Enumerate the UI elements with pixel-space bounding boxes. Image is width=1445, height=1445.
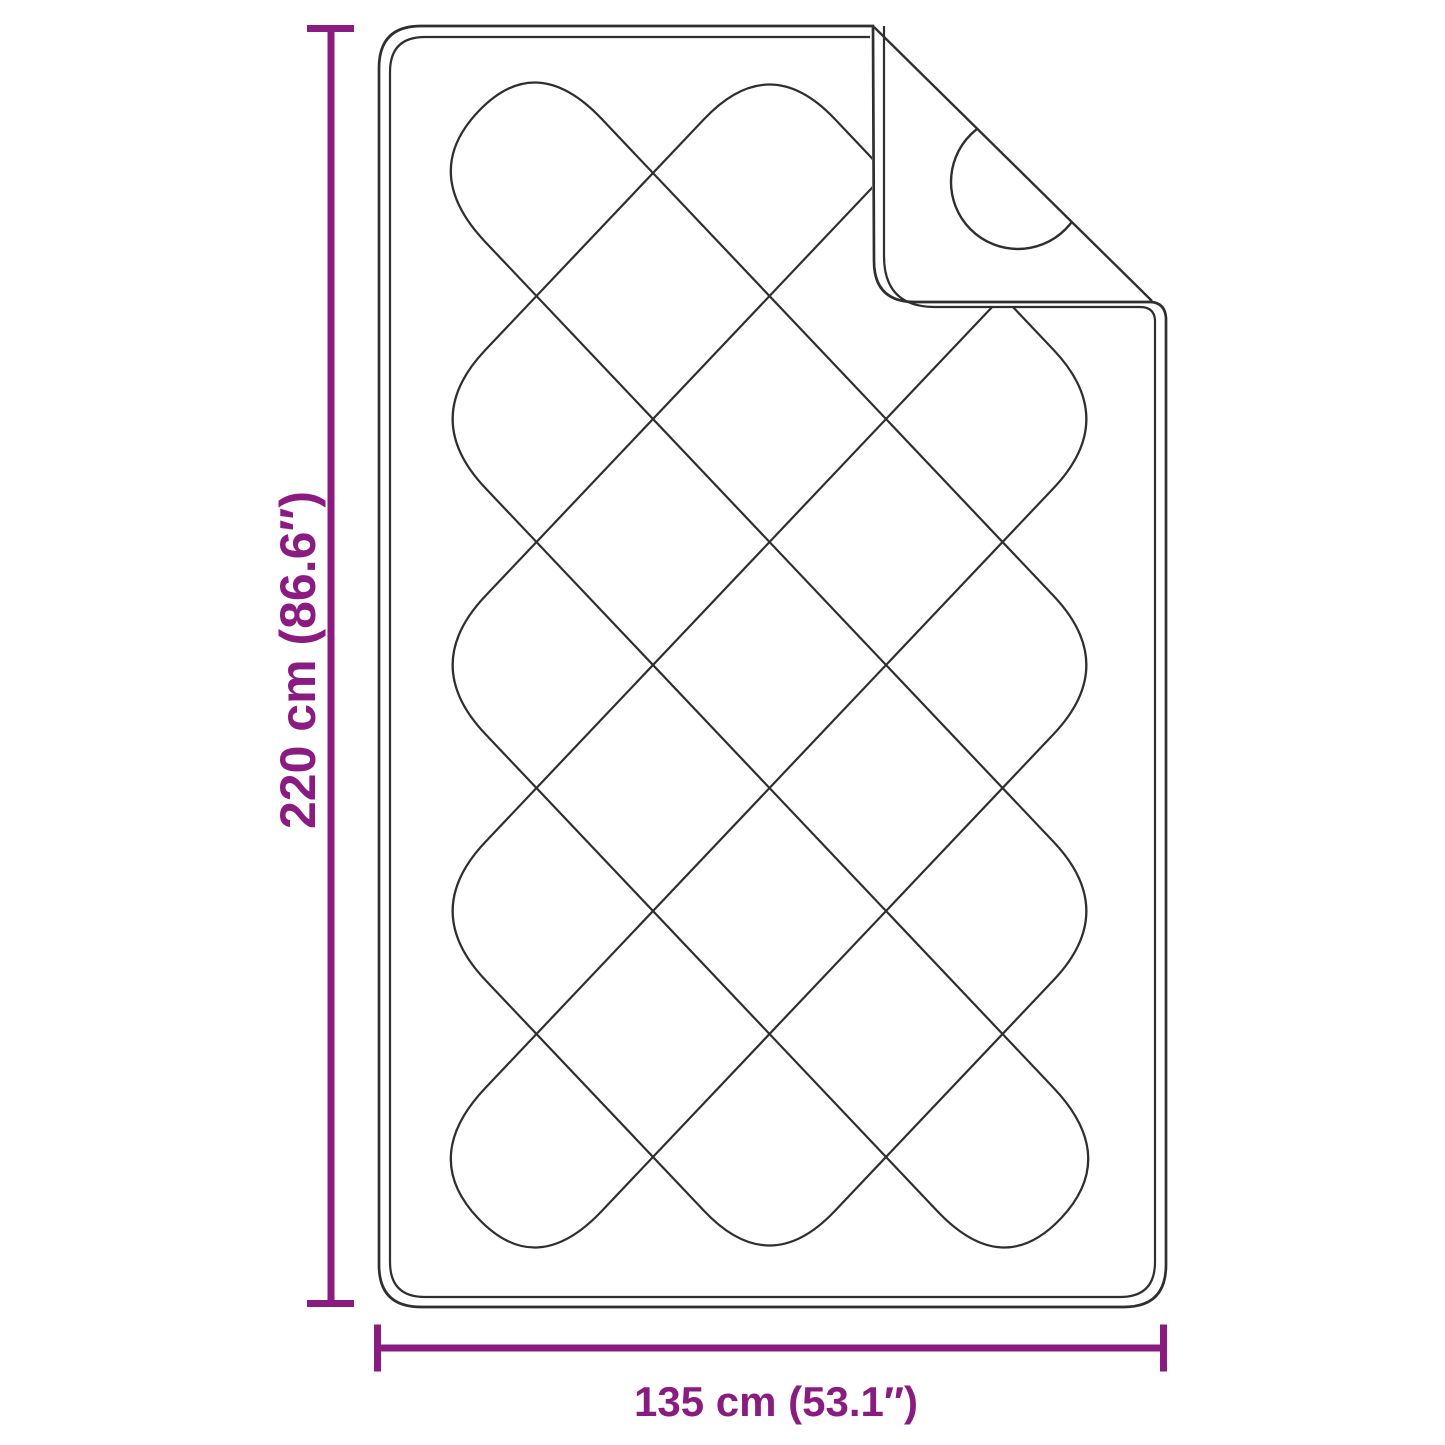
quilt-stitching-pattern	[451, 83, 1088, 1248]
quilting-pattern-group	[451, 83, 1088, 1248]
height-dimension-label: 220 cm (86.6″)	[270, 491, 326, 829]
fold-crease-line	[874, 27, 1152, 301]
height-dimension: 220 cm (86.6″)	[270, 29, 354, 1304]
blanket-outer-edge	[379, 26, 1166, 1307]
width-dimension-label: 135 cm (53.1″)	[634, 1378, 918, 1425]
product-dimension-diagram: 220 cm (86.6″) 135 cm (53.1″)	[0, 0, 1445, 1445]
width-dimension: 135 cm (53.1″)	[378, 1325, 1164, 1426]
fold-label-circle	[951, 115, 1085, 249]
blanket-diagram-svg: 220 cm (86.6″) 135 cm (53.1″)	[0, 0, 1445, 1445]
fold-label-group	[951, 115, 1085, 249]
blanket-inner-edge	[390, 26, 1155, 1297]
